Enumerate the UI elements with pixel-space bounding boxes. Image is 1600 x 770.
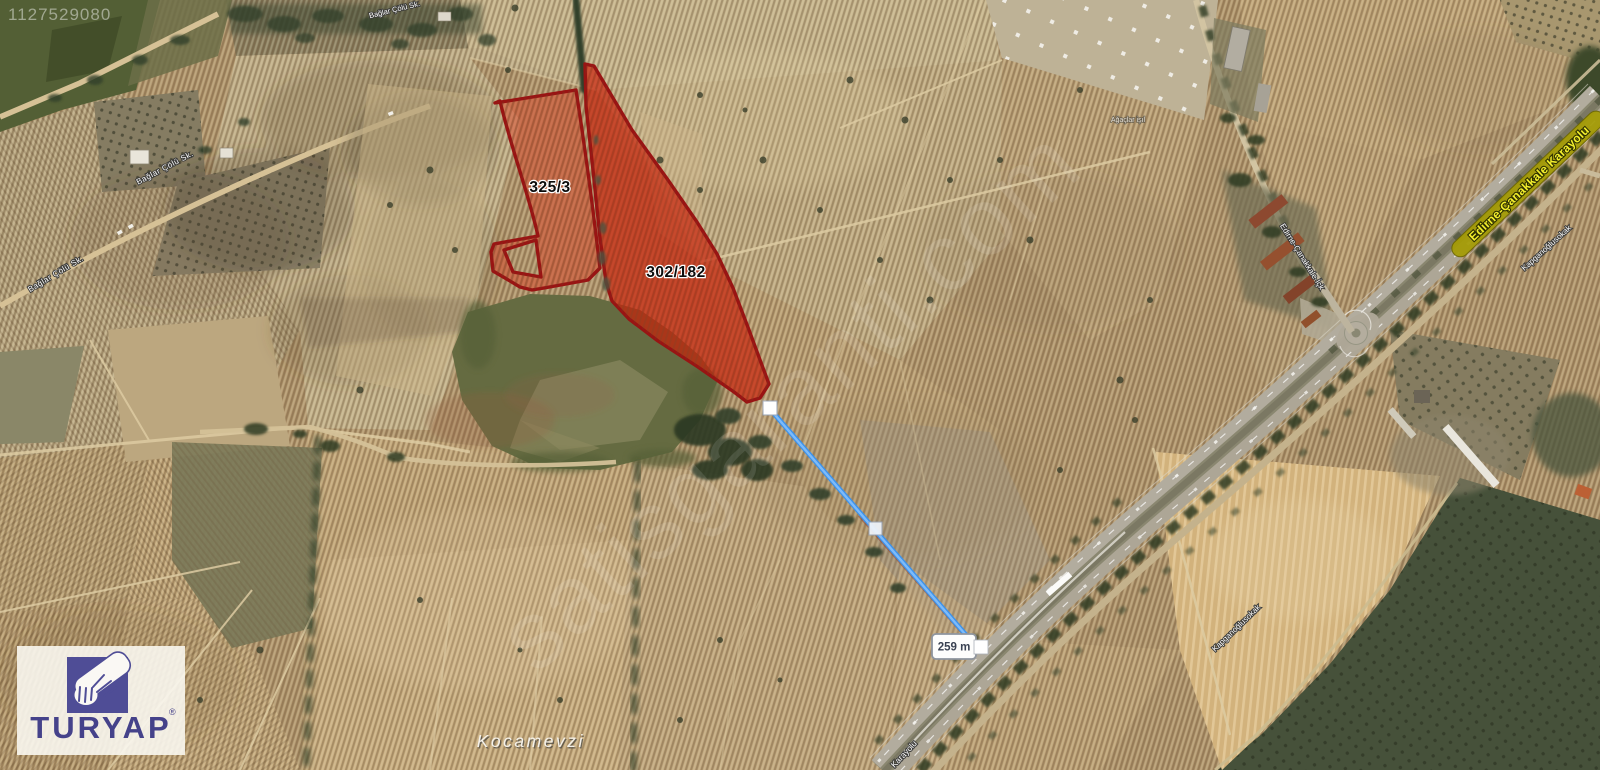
svg-text:TURYAP: TURYAP	[30, 710, 171, 745]
svg-text:Ağaçlar işıl: Ağaçlar işıl	[1111, 117, 1146, 124]
svg-text:259 m: 259 m	[938, 642, 971, 654]
svg-text:325/3: 325/3	[529, 179, 570, 196]
svg-text:302/182: 302/182	[646, 264, 706, 281]
svg-text:®: ®	[169, 707, 176, 717]
svg-text:1127529080: 1127529080	[8, 5, 111, 24]
svg-text:Kocamevzi: Kocamevzi	[477, 731, 585, 751]
